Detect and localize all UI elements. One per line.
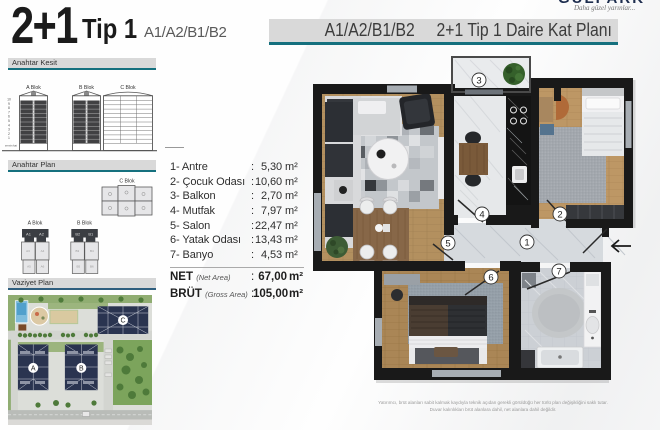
svg-text:B4: B4	[90, 249, 94, 253]
svg-text:5: 5	[445, 239, 450, 250]
svg-text:2: 2	[557, 210, 562, 221]
svg-text:A3: A3	[26, 249, 30, 253]
svg-text:1: 1	[8, 136, 10, 140]
svg-text:A6: A6	[41, 265, 45, 269]
svg-text:3: 3	[476, 76, 481, 87]
svg-text:B3: B3	[75, 249, 79, 253]
svg-text:B: B	[79, 365, 84, 372]
svg-text:1: 1	[524, 238, 529, 249]
svg-text:C Blok: C Blok	[120, 85, 136, 91]
svg-text:A2: A2	[39, 232, 45, 237]
svg-text:7: 7	[556, 267, 561, 278]
svg-text:C: C	[120, 318, 125, 325]
svg-text:C Blok: C Blok	[119, 179, 135, 185]
svg-text:6: 6	[488, 273, 493, 284]
svg-text:A: A	[31, 365, 36, 372]
svg-text:A5: A5	[27, 265, 31, 269]
svg-text:B Blok: B Blok	[79, 85, 94, 91]
svg-text:A4: A4	[41, 249, 45, 253]
svg-text:B6: B6	[90, 265, 94, 269]
svg-text:4: 4	[479, 210, 484, 221]
svg-text:B5: B5	[76, 265, 80, 269]
svg-text:A Blok: A Blok	[26, 85, 41, 91]
svg-text:A1: A1	[26, 232, 32, 237]
svg-text:B2: B2	[75, 232, 81, 237]
svg-text:B Blok: B Blok	[77, 221, 92, 227]
svg-text:B1: B1	[88, 232, 94, 237]
svg-text:A Blok: A Blok	[28, 221, 43, 227]
svg-text:zemin kat: zemin kat	[5, 144, 17, 148]
